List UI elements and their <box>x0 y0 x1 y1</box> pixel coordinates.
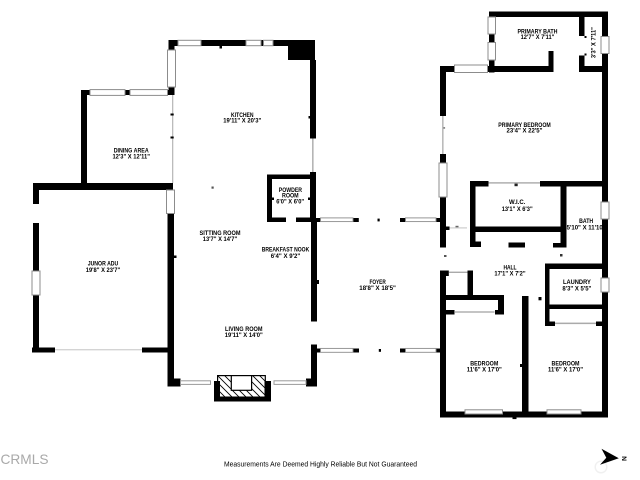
svg-text:JUNOR ADU: JUNOR ADU <box>88 262 119 268</box>
svg-text:6'0" X 6'0": 6'0" X 6'0" <box>276 200 304 206</box>
svg-text:17'1" X 7'2": 17'1" X 7'2" <box>494 271 525 277</box>
svg-text:8'3" X 5'5": 8'3" X 5'5" <box>562 287 591 293</box>
svg-text:CRMLS: CRMLS <box>1 451 49 467</box>
svg-text:5'10" X 11'10": 5'10" X 11'10" <box>567 225 606 231</box>
svg-text:BATH: BATH <box>579 219 593 225</box>
svg-text:11'6" X 17'0": 11'6" X 17'0" <box>548 367 583 373</box>
svg-text:12'7" X 7'11": 12'7" X 7'11" <box>521 35 555 41</box>
svg-text:6'4" X 9'2": 6'4" X 9'2" <box>271 254 301 260</box>
svg-text:13'7" X 14'7": 13'7" X 14'7" <box>203 237 238 243</box>
svg-text:11'6" X 17'0": 11'6" X 17'0" <box>467 367 502 373</box>
svg-text:12'3" X 12'11": 12'3" X 12'11" <box>112 154 150 160</box>
svg-text:3'3" X 7'11": 3'3" X 7'11" <box>592 27 598 58</box>
svg-text:19'11" X 20'3": 19'11" X 20'3" <box>223 119 261 125</box>
svg-text:Measurements Are Deemed Highly: Measurements Are Deemed Highly Reliable … <box>224 461 417 468</box>
svg-text:18'8" X 18'5": 18'8" X 18'5" <box>359 286 396 292</box>
svg-text:BREAKFAST NOOK: BREAKFAST NOOK <box>262 247 310 253</box>
svg-text:19'11" X 14'0": 19'11" X 14'0" <box>225 333 263 339</box>
svg-text:13'1" X 6'3": 13'1" X 6'3" <box>502 207 533 213</box>
svg-text:19'8" X 23'7": 19'8" X 23'7" <box>86 268 121 274</box>
svg-text:23'4" X 22'5": 23'4" X 22'5" <box>507 129 543 135</box>
svg-text:LAUNDRY: LAUNDRY <box>563 280 591 286</box>
svg-text:N: N <box>620 456 627 461</box>
svg-text:W.I.C.: W.I.C. <box>509 200 526 206</box>
